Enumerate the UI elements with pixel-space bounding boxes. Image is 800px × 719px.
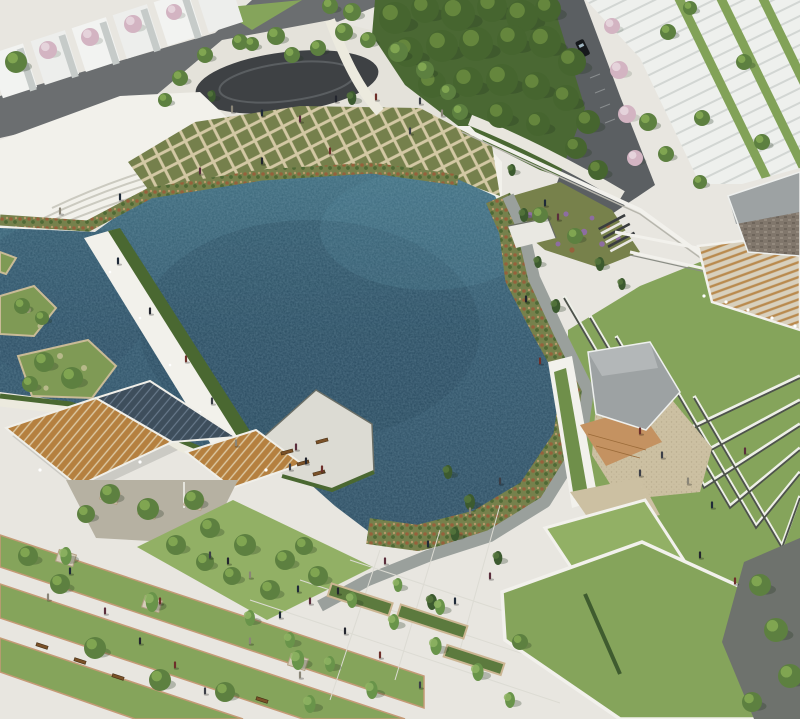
rendering-frame [0,0,800,719]
park-aerial-rendering [0,0,800,719]
